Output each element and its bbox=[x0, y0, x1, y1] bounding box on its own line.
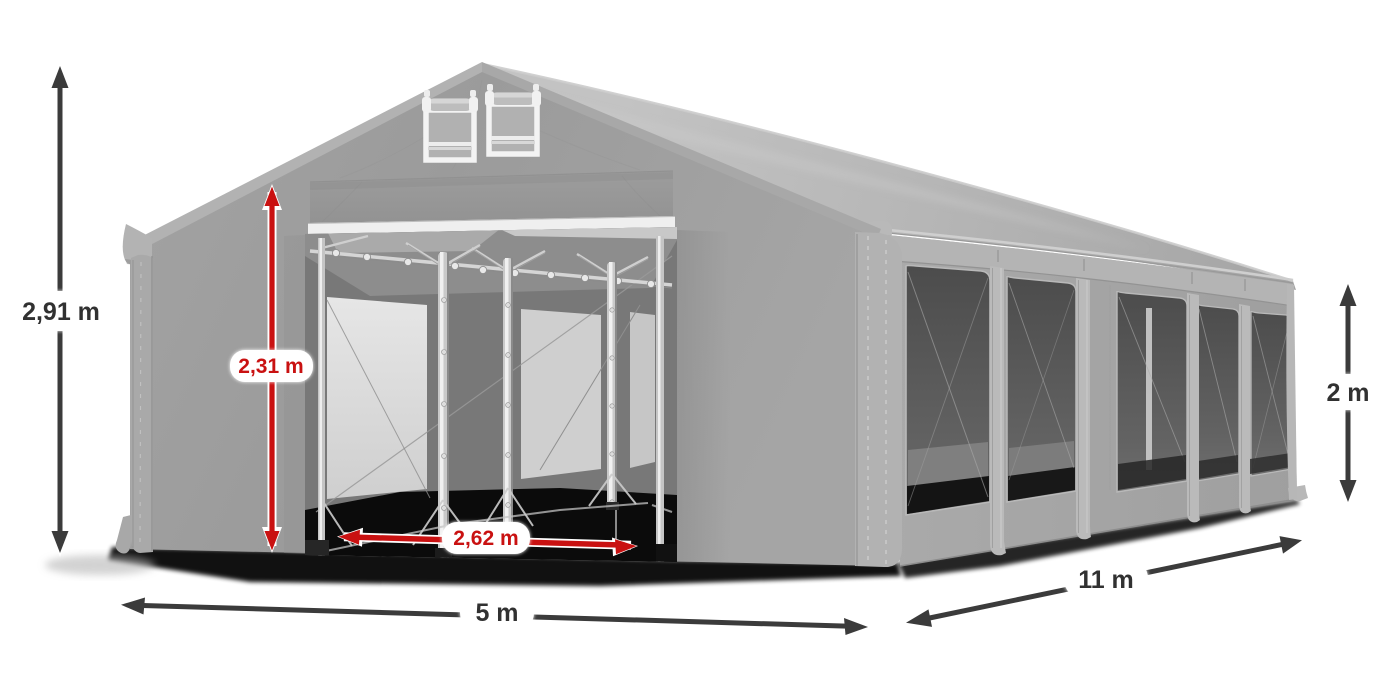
svg-text:2,62 m: 2,62 m bbox=[453, 527, 518, 550]
svg-text:2,91 m: 2,91 m bbox=[22, 298, 100, 326]
svg-text:5 m: 5 m bbox=[475, 599, 518, 627]
svg-text:2 m: 2 m bbox=[1326, 379, 1369, 407]
svg-text:11 m: 11 m bbox=[1078, 566, 1134, 594]
svg-text:2,31 m: 2,31 m bbox=[238, 355, 303, 378]
